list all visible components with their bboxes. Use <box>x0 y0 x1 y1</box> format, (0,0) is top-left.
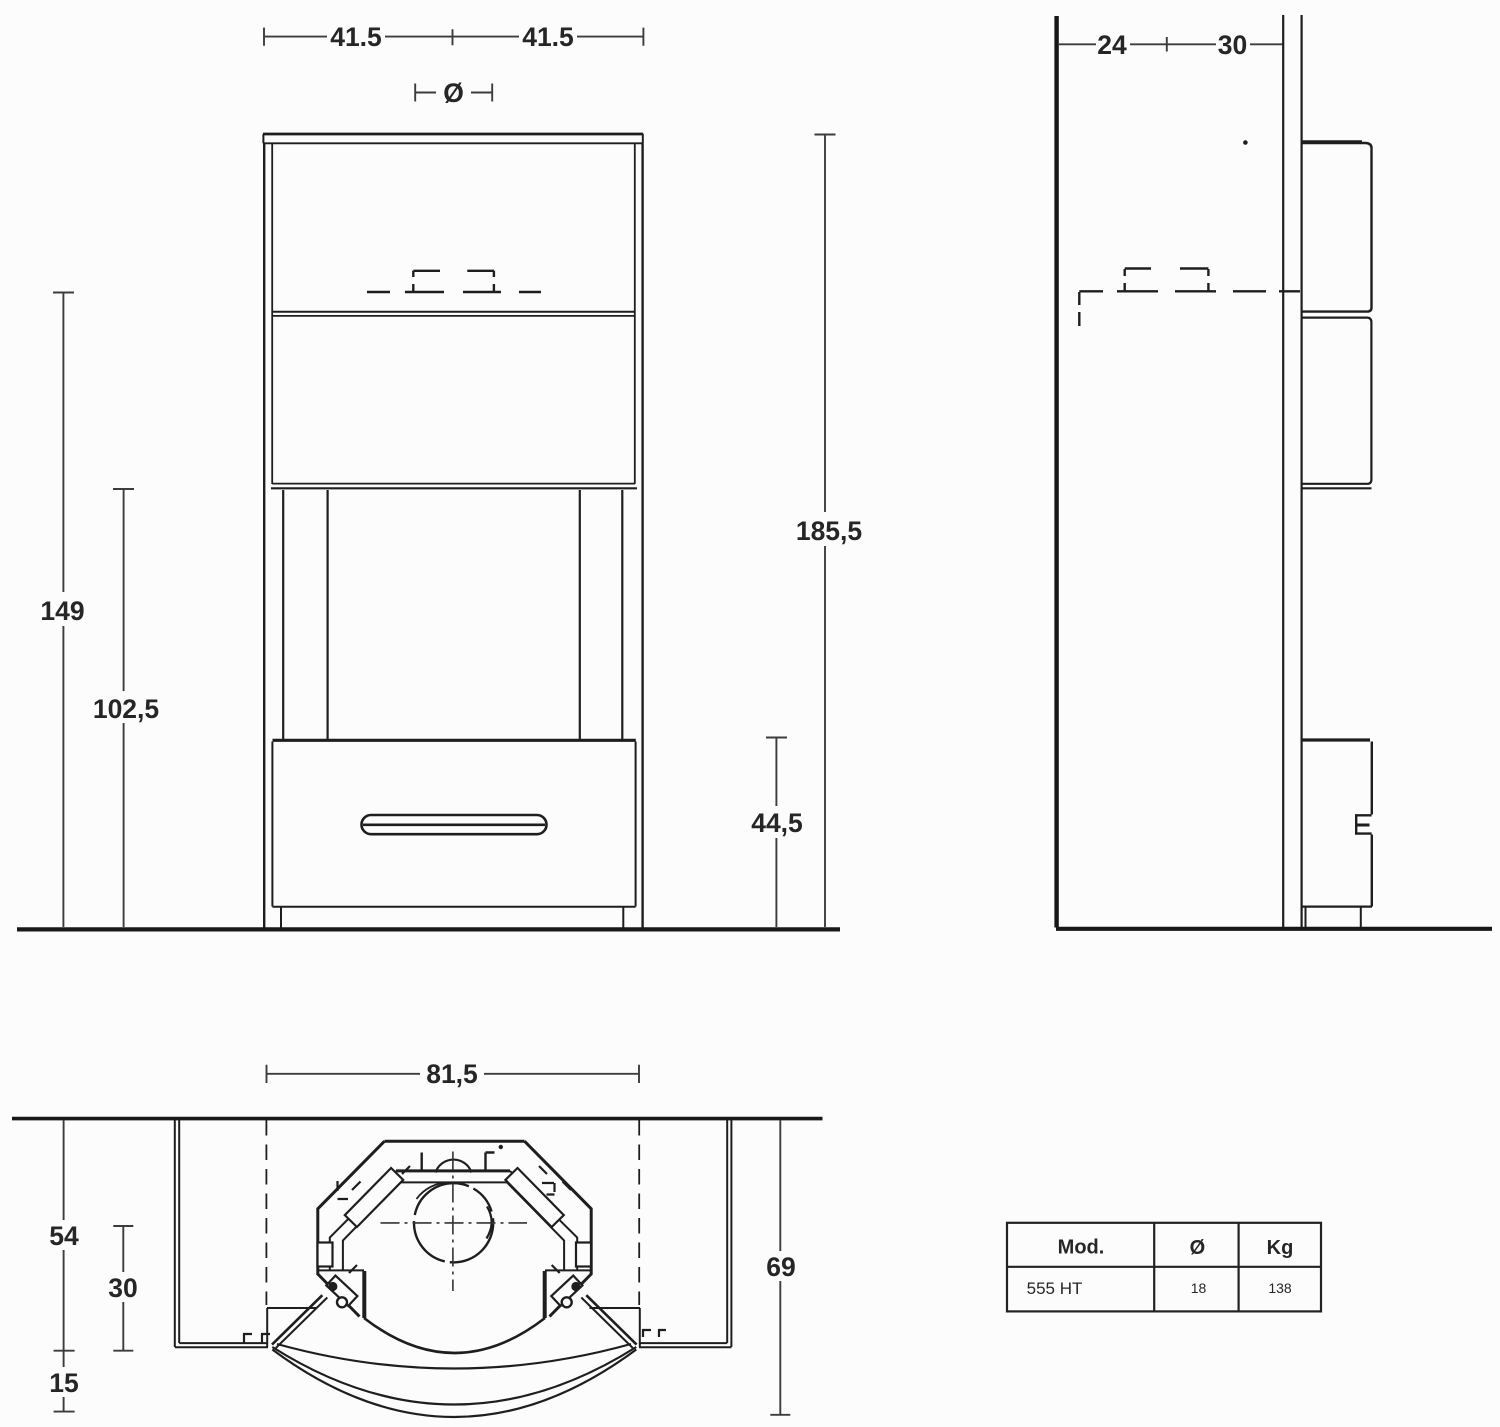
svg-text:81,5: 81,5 <box>426 1059 478 1089</box>
svg-text:41.5: 41.5 <box>330 22 382 52</box>
svg-text:138: 138 <box>1268 1280 1292 1296</box>
svg-text:18: 18 <box>1191 1280 1207 1296</box>
svg-text:Ø: Ø <box>1190 1237 1206 1259</box>
svg-text:149: 149 <box>40 596 84 626</box>
svg-text:102,5: 102,5 <box>93 694 159 724</box>
svg-text:555 HT: 555 HT <box>1027 1279 1083 1298</box>
svg-text:41.5: 41.5 <box>522 22 574 52</box>
svg-text:185,5: 185,5 <box>796 516 862 546</box>
svg-text:Mod.: Mod. <box>1058 1237 1105 1259</box>
svg-text:69: 69 <box>766 1252 795 1282</box>
svg-text:30: 30 <box>1218 30 1247 60</box>
svg-text:Kg: Kg <box>1267 1237 1294 1259</box>
svg-text:24: 24 <box>1097 30 1127 60</box>
svg-text:30: 30 <box>108 1273 137 1303</box>
svg-text:15: 15 <box>49 1368 78 1398</box>
svg-text:Ø: Ø <box>443 78 464 108</box>
svg-text:54: 54 <box>49 1221 79 1251</box>
svg-text:44,5: 44,5 <box>751 808 803 838</box>
